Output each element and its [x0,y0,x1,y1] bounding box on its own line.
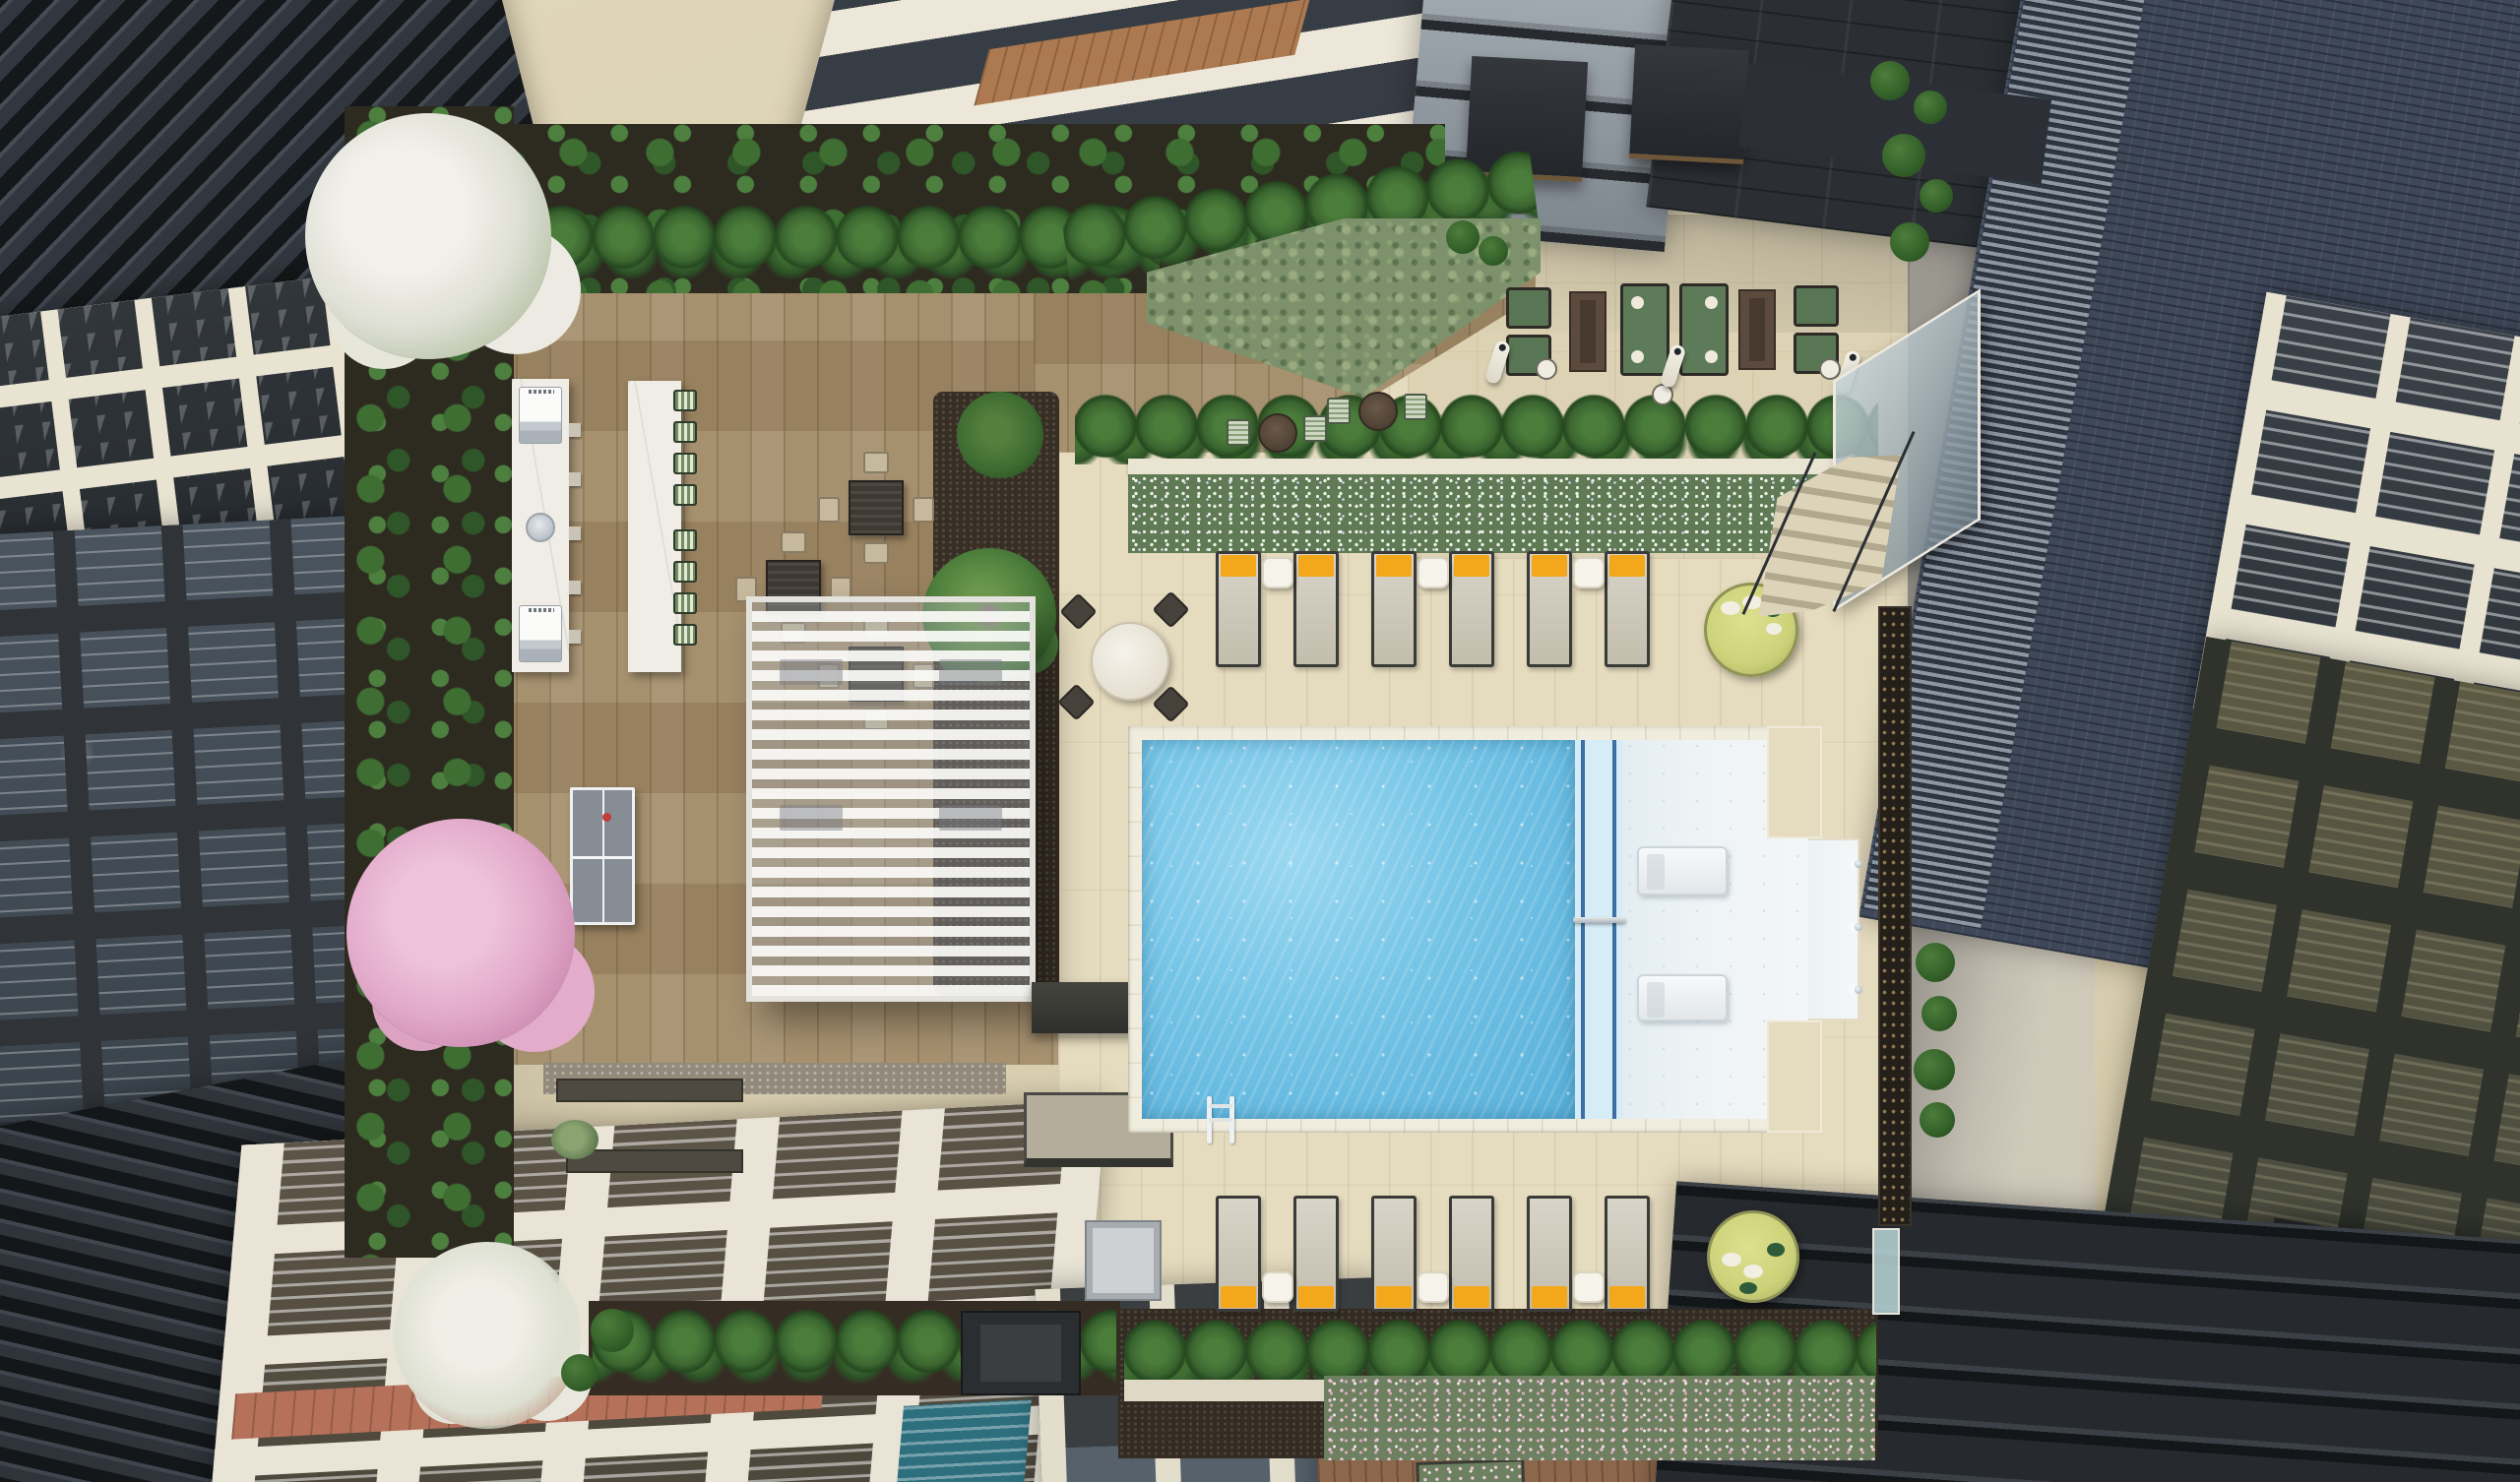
counter-bracket [569,526,581,540]
bar-stool [673,390,697,411]
grill-vents [529,608,554,612]
boxwood-shrub [1479,236,1508,266]
boxwood-shrub [1920,179,1953,213]
pool-grab-rail [1573,917,1626,923]
boxwood-shrub [1914,1049,1955,1090]
sun-lounger [1293,1196,1339,1312]
lounger-cushion [1221,555,1256,577]
coffee-table [1569,291,1606,372]
sun-lounger [1449,1196,1494,1312]
lounger-side-table [1573,1271,1605,1303]
pergola-trellis [746,596,1036,1002]
sun-lounger [1605,1196,1650,1312]
sun-lounger [1449,551,1494,667]
lounge-armchair [1794,285,1839,327]
counter-sink [526,513,555,542]
furniture-under-pergola [939,659,1002,685]
planter-bench [556,1079,743,1102]
media-wall [961,1311,1081,1395]
sofa-pillow [1705,296,1718,309]
grill [519,605,562,662]
ping-pong-paddle [602,813,611,822]
sofa-pillow [1631,350,1644,363]
lounger-side-table [1573,557,1605,588]
lounger-side-table [1417,1271,1449,1303]
bistro-chair [1327,398,1351,424]
boxwood-shrub [1446,220,1480,254]
lounger-cushion [1609,555,1645,577]
bistro-chair [1303,415,1327,442]
bar-stool [673,453,697,474]
daybed-pillow [1739,1282,1757,1294]
sofa-pillow [1705,350,1718,363]
boxwood-shrub [1921,996,1957,1031]
roof-planter-box [1416,1458,1526,1482]
daybed-pillow [1766,623,1782,635]
lounger-cushion [1298,555,1334,577]
counter-bracket [569,630,581,644]
sun-lounger [1371,1196,1417,1312]
drum-side-table [1536,358,1557,380]
grill-vents [529,390,554,394]
boxwood-shrub [591,1309,634,1352]
boxwood-shrub [561,1354,598,1391]
counter-bracket [569,581,581,594]
daybed-pillow [1743,1265,1763,1278]
dining-chair [863,452,889,473]
boxwood-hedge-top [471,203,1160,287]
pink-flower-bed-bottom [1324,1376,1875,1460]
outdoor-cabinet [1085,1220,1162,1301]
sun-lounger [1216,1196,1261,1312]
daybed-pillow [1722,1253,1741,1266]
stone-edge-strip [1124,1380,1326,1401]
lounger-cushion [1532,555,1567,577]
glass-balustrade [1872,1228,1900,1315]
sun-lounger [1371,551,1417,667]
lap-lane-dividers [1575,740,1622,1119]
lounger-cushion [1376,555,1412,577]
in-water-lounger [1637,846,1728,895]
bistro-chair [1404,394,1427,420]
bar-stool [673,421,697,443]
planter-bench [566,1149,743,1173]
boxwood-hedge-middle [1075,392,1878,464]
lounger-cushion [1532,1286,1567,1308]
ping-pong-table [570,787,635,925]
furniture-under-pergola [780,659,843,685]
grill [519,387,562,444]
flower-bed-above-pool [1128,474,1878,553]
grill-counter [512,379,569,672]
lounger-side-table [1262,1271,1293,1303]
grass-tuft [551,1120,598,1159]
dining-chair [913,497,934,523]
counter-bracket [569,472,581,486]
water-jet [1855,923,1862,931]
sun-lounger [1527,551,1572,667]
daybed-pillow [1721,601,1740,615]
boxwood-shrub [1916,943,1955,982]
lounger-cushion [1454,1286,1489,1308]
pink-blossom-tree [346,819,575,1047]
white-blossom-tree [394,1242,581,1429]
water-jet [1855,986,1862,994]
counter-bracket [569,423,581,437]
in-water-lounger [1637,974,1728,1021]
lounger-cushion [1298,1286,1334,1308]
lounger-side-table [1417,557,1449,588]
water-jet [1855,860,1862,868]
bistro-table [1358,392,1398,431]
ladder-rung [1209,1104,1232,1108]
planter-wall [1128,459,1878,474]
bronze-lattice-screen [1878,606,1912,1226]
lounge-sofa [1679,283,1729,376]
pool-water [1142,740,1575,1119]
sun-lounger [1605,551,1650,667]
coping-notch [1767,1020,1822,1133]
round-daybed [1707,1210,1799,1303]
teal-window [896,1399,1032,1482]
balcony-awning [1629,44,1749,164]
daybed-pillow [1767,1243,1785,1257]
lounge-sofa [1620,283,1669,376]
sofa-pillow [1631,296,1644,309]
lounger-side-table [1262,557,1293,588]
lounger-cushion [1221,1286,1256,1308]
lounger-cushion [1609,1286,1645,1308]
bar-stool [673,592,697,614]
sun-lounger [1527,1196,1572,1312]
bistro-table [1258,413,1297,453]
sun-lounger [1216,551,1261,667]
lounger-cushion [1454,555,1489,577]
round-dining-table [1091,622,1169,701]
lounge-armchair [1506,287,1551,329]
furniture-under-pergola [780,805,843,831]
furniture-under-pergola [939,805,1002,831]
coffee-table [1738,289,1776,370]
boxwood-shrub [1914,91,1947,124]
courtyard-aerial-scene [0,0,2520,1482]
bar-stool [673,561,697,583]
white-blossom-tree [305,113,551,359]
dining-chair [781,531,806,553]
bar-stool [673,624,697,646]
sun-lounger [1293,551,1339,667]
lounger-cushion [1376,1286,1412,1308]
boxwood-shrub [1882,134,1925,177]
bistro-chair [1227,419,1250,446]
boxwood-shrub [1920,1102,1955,1138]
coping-notch [1767,726,1822,838]
boxwood-shrub [1870,61,1910,100]
boxwood-shrub [1890,222,1929,262]
bar-stool [673,484,697,506]
small-conifer-tree [957,392,1043,478]
bar-stool-row [673,390,699,663]
tanning-ledge-extension [1808,838,1859,1020]
bar-stool [673,529,697,551]
ladder-rung [1209,1118,1232,1122]
